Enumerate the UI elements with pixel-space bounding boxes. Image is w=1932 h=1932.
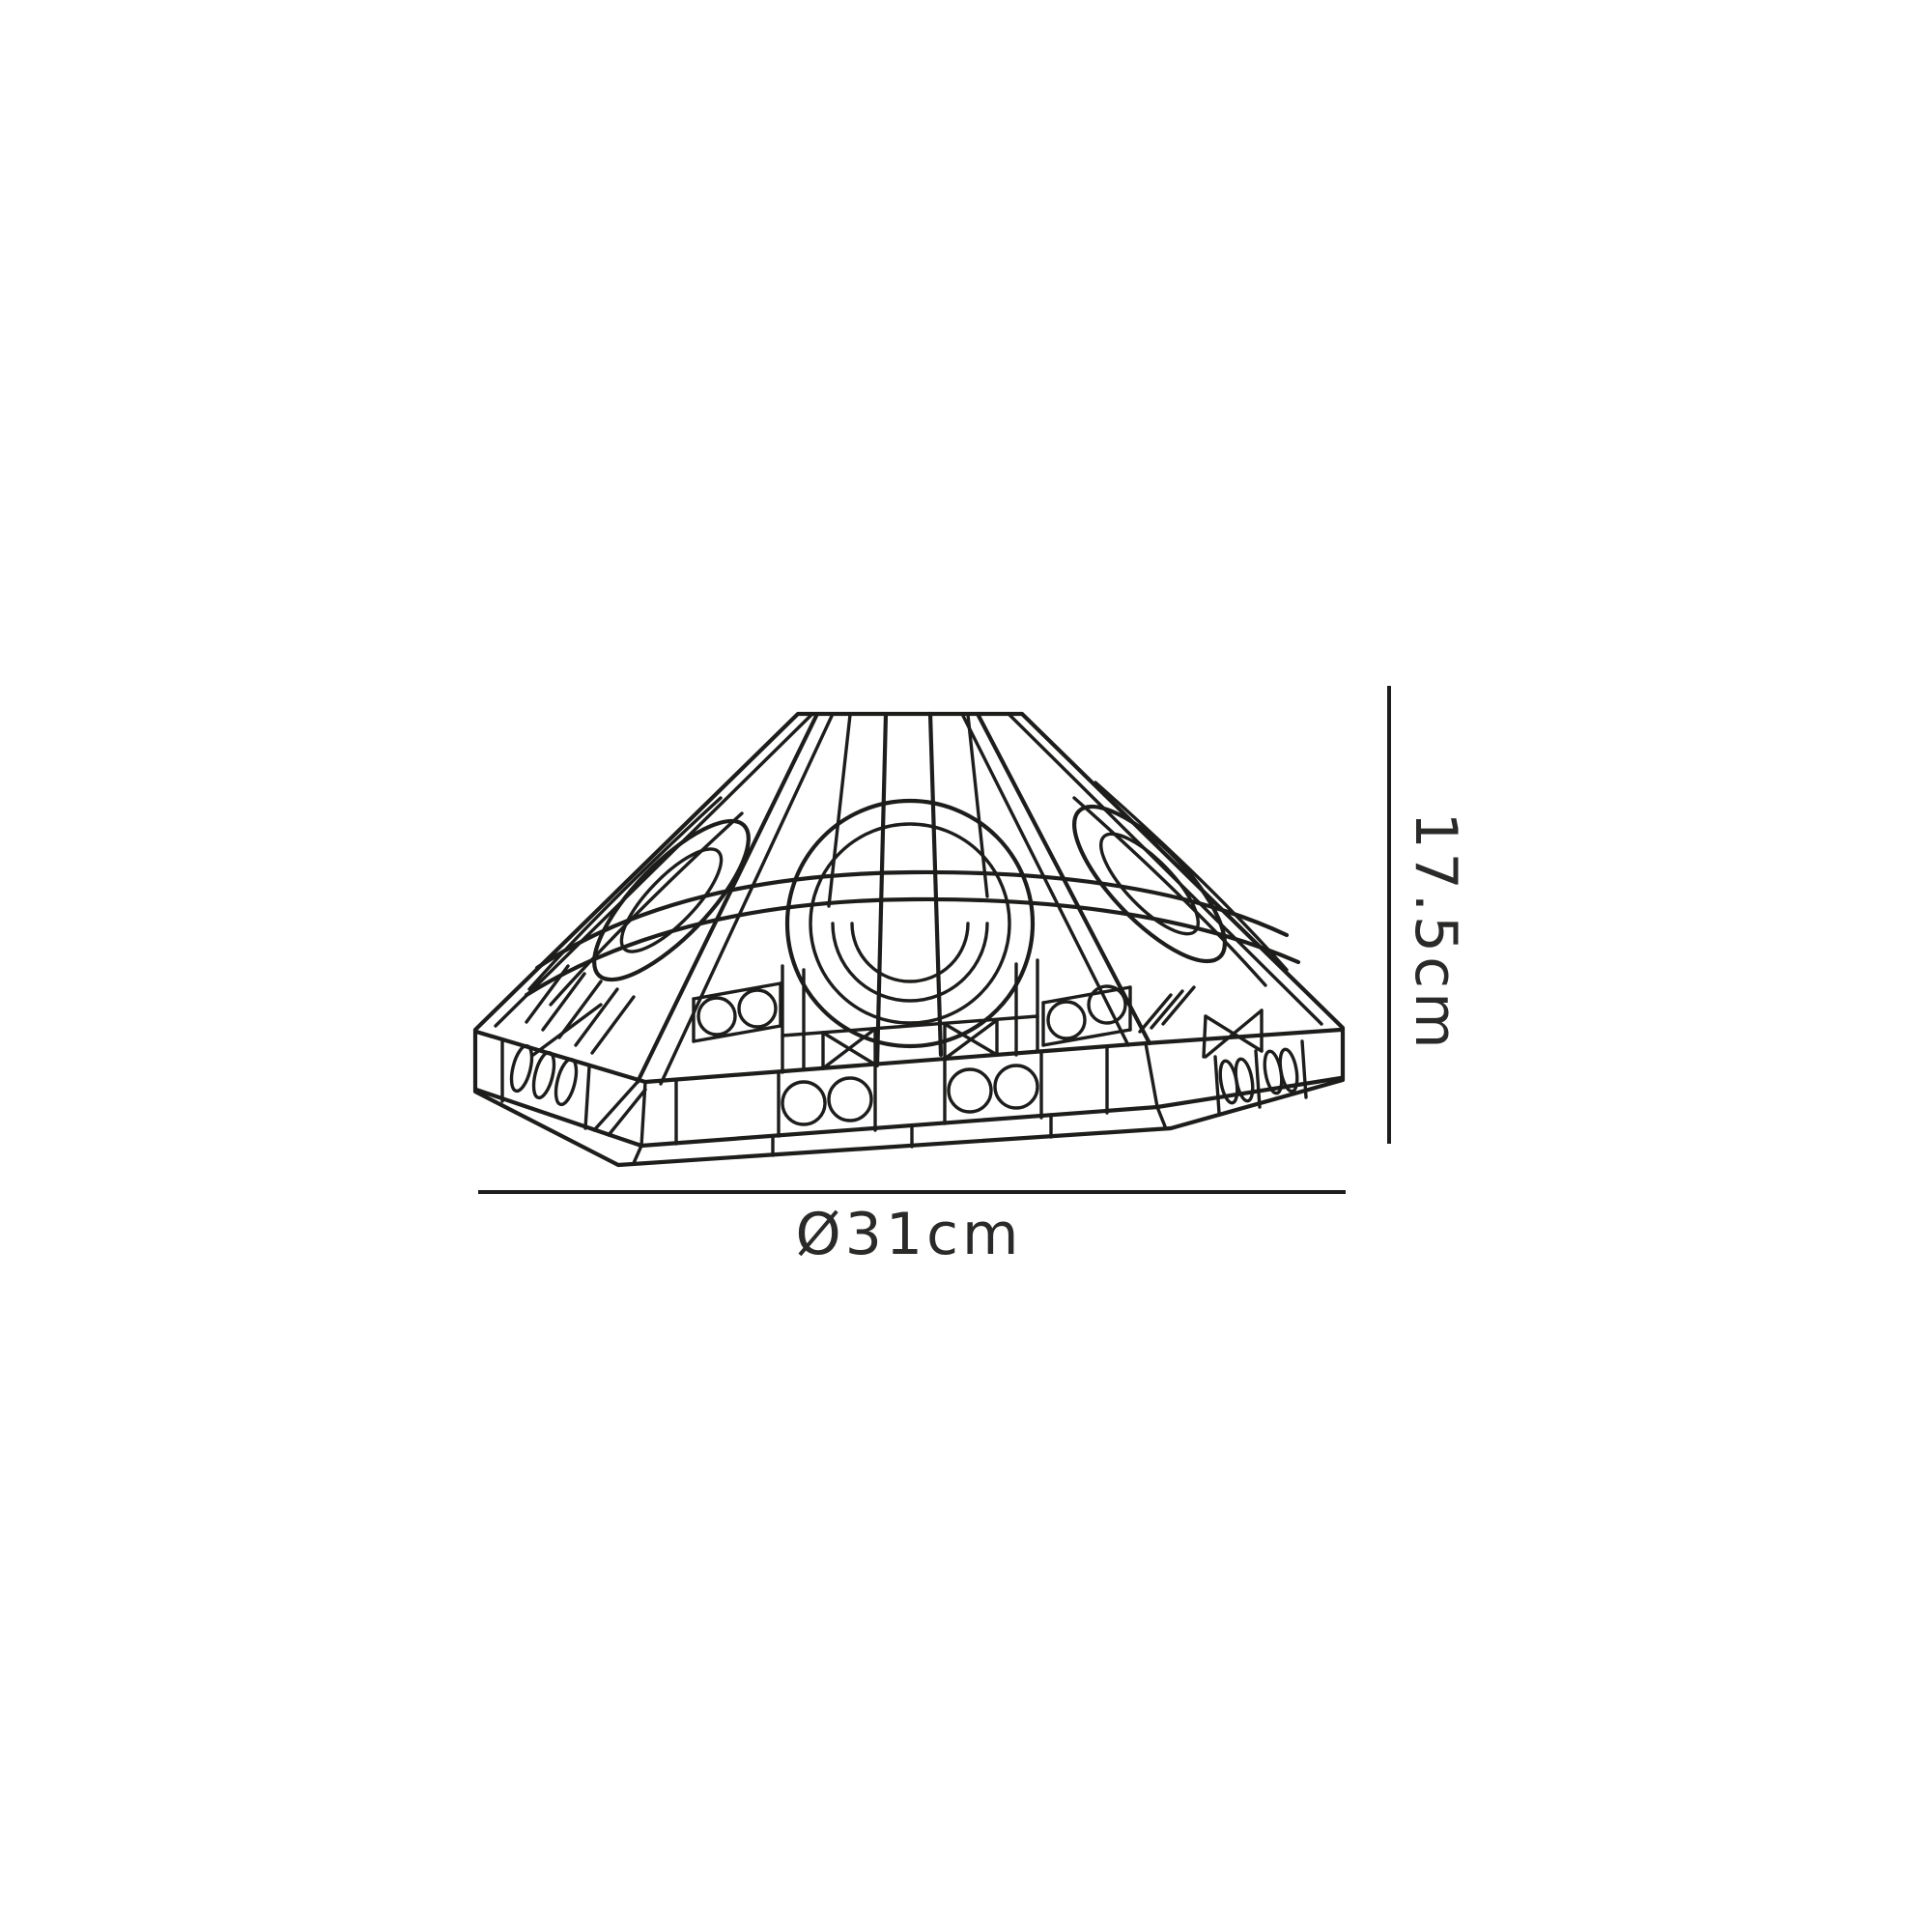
- lampshade-technical-drawing: 17.5cm Ø31cm: [0, 0, 1932, 1932]
- diameter-dimension: Ø31cm: [478, 1192, 1346, 1268]
- height-dimension: 17.5cm: [1389, 686, 1469, 1144]
- diameter-label: Ø31cm: [795, 1201, 1022, 1268]
- diagram-canvas: 17.5cm Ø31cm: [0, 0, 1932, 1932]
- center-ring: [782, 801, 1037, 1072]
- height-label: 17.5cm: [1402, 811, 1469, 1052]
- bottom-band: [502, 966, 1306, 1144]
- shade-outline: [475, 714, 1343, 1165]
